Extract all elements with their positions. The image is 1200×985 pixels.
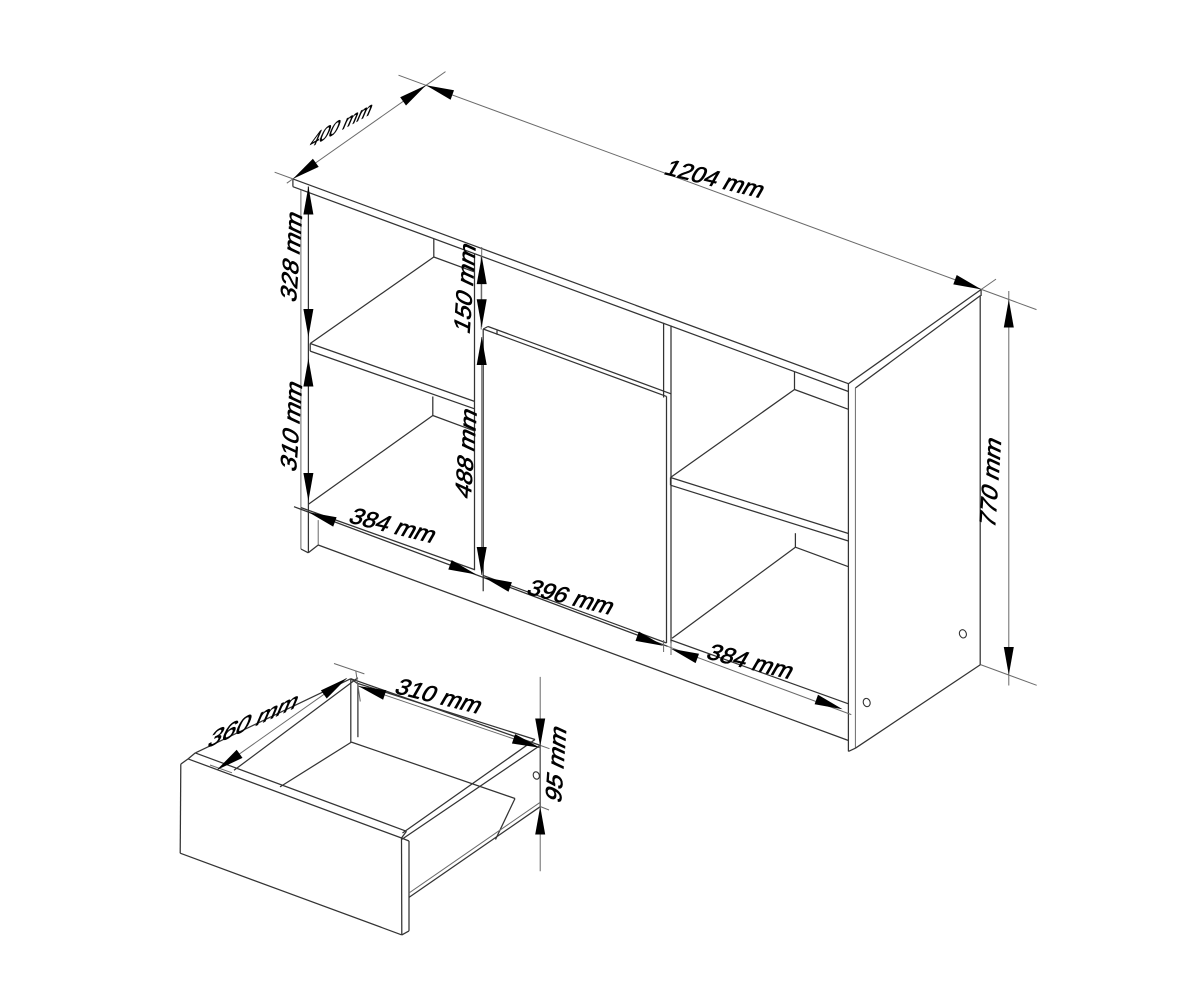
svg-text:95 mm: 95 mm [542,721,572,807]
